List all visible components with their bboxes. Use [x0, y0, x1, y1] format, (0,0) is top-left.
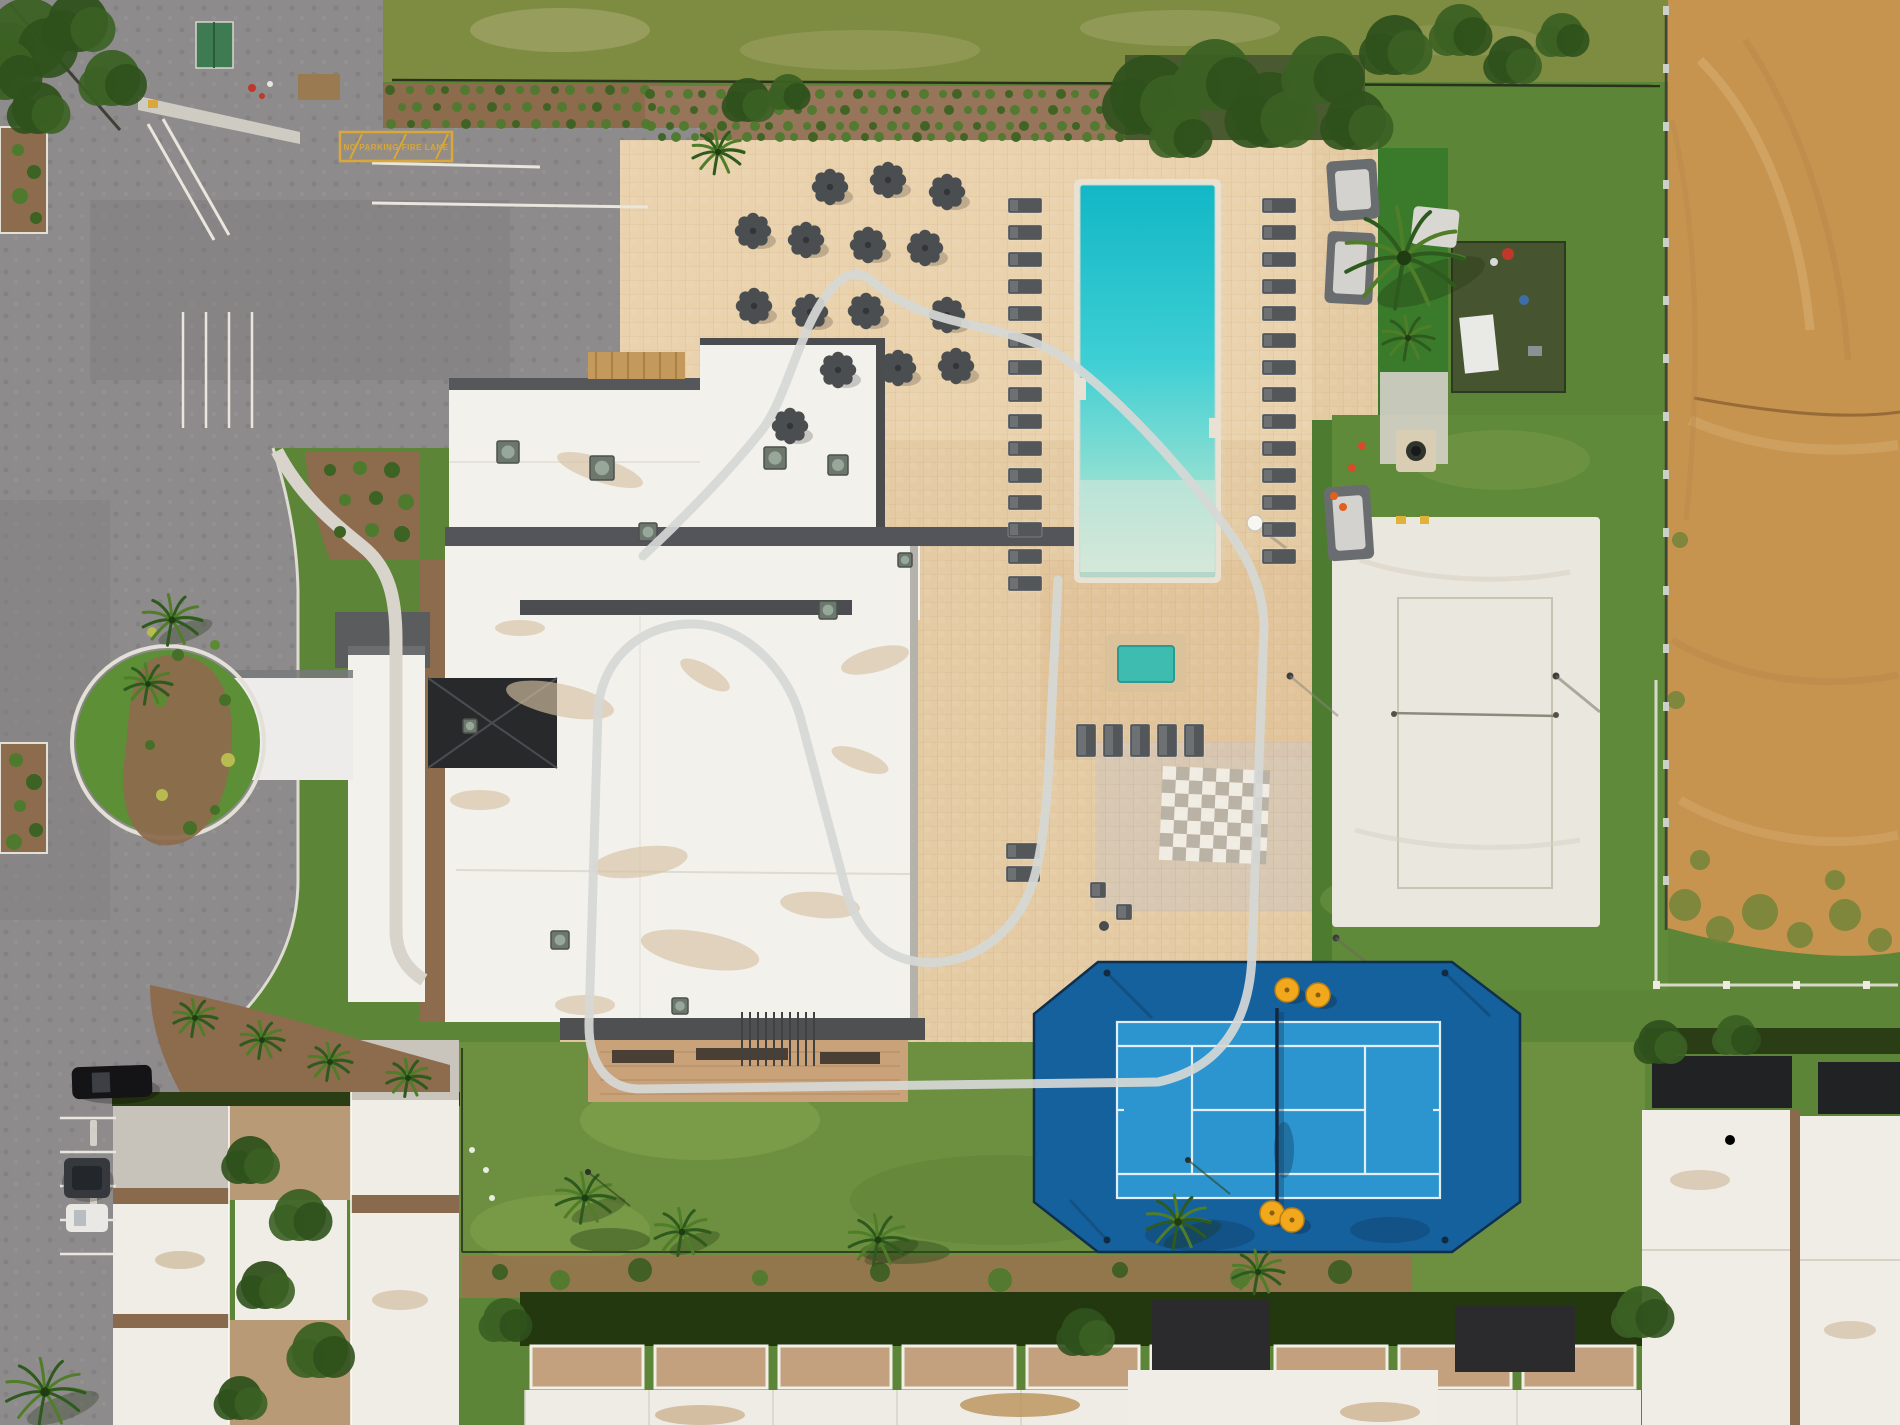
lounge-chair: [1262, 306, 1296, 321]
lounge-chair-pillow: [1159, 726, 1167, 755]
chessboard-square: [1200, 835, 1214, 849]
hedge-shrub: [433, 103, 441, 111]
umbrella-canopy-lobe: [900, 353, 912, 365]
palm-crown: [1255, 1269, 1261, 1275]
umbrella-canopy-lobe: [808, 225, 820, 237]
hedge-shrub: [442, 120, 450, 128]
palm-crown: [259, 1037, 265, 1043]
landscape-shrub: [339, 494, 351, 506]
tree-foliage: [1506, 48, 1542, 84]
hedge-shrub: [386, 119, 396, 129]
hedge-shrub: [869, 122, 877, 130]
hedge-shrub: [985, 89, 995, 99]
spa-hot-tub: [1118, 646, 1174, 682]
dry-grass-patch: [740, 30, 980, 70]
lounge-chair: [1262, 198, 1296, 213]
hedge-shrub: [1056, 89, 1066, 99]
stored-item: [1502, 248, 1514, 260]
yellow-marker: [1420, 516, 1429, 524]
party-wall: [351, 1195, 459, 1213]
hedge-shrub: [1019, 121, 1029, 131]
dirt-lot-weeds: [1829, 899, 1861, 931]
umbrella-pole-top: [751, 303, 757, 309]
lounge-chair-pillow: [1008, 868, 1016, 880]
ac-fan: [555, 935, 566, 946]
roof-parapet: [449, 378, 700, 392]
lounge-chair-pillow: [1264, 416, 1272, 427]
lounge-chair: [1262, 279, 1296, 294]
chessboard-square: [1187, 821, 1201, 835]
lounge-chair-pillow: [1264, 335, 1272, 346]
hedge-shrub: [750, 121, 760, 131]
hedge-shrub: [964, 106, 972, 114]
lounge-chair-pillow: [1264, 254, 1272, 265]
hedge-shrub: [945, 132, 955, 142]
hedge-shrub: [421, 119, 431, 129]
hedge-shrub: [849, 121, 859, 131]
chessboard-square: [1229, 769, 1243, 783]
hedge-shrub: [708, 105, 718, 115]
roof-stain: [960, 1393, 1080, 1417]
tree-foliage: [1079, 1320, 1115, 1356]
fence-post: [1663, 354, 1669, 363]
townhouse-roof: [1642, 1110, 1790, 1425]
cabana-daybed: [1326, 158, 1380, 221]
fence-post: [1793, 981, 1800, 989]
construction-marker: [259, 93, 265, 99]
hedge-shrub: [1030, 106, 1038, 114]
hedge-shrub: [717, 121, 727, 131]
lounge-chair-pillow: [1132, 726, 1140, 755]
hedge-shrub: [902, 122, 910, 130]
chessboard-square: [1161, 806, 1175, 820]
lounge-chair-pillow: [1264, 389, 1272, 400]
landscape-shrub: [369, 491, 383, 505]
landscape-shrub: [324, 464, 336, 476]
yellow-marker: [1396, 516, 1406, 524]
lounge-chair-pillow: [1010, 227, 1018, 238]
roof-stain: [155, 1251, 205, 1269]
fence-post: [1663, 412, 1669, 421]
lounge-chair-pillow: [1186, 726, 1194, 755]
island-shrub: [219, 694, 231, 706]
globe-light: [1247, 515, 1263, 531]
landscape-shrub: [9, 753, 23, 767]
hedge-shrub: [860, 106, 868, 114]
rooftop-ac-unit: [551, 931, 569, 949]
island-shrub: [183, 821, 197, 835]
lounge-chair-pillow: [1092, 884, 1100, 896]
hedge-shrub: [1057, 121, 1067, 131]
chessboard-square: [1199, 848, 1213, 862]
patio-furniture: [612, 1050, 674, 1063]
hedge-shrub: [666, 122, 674, 130]
lounge-chair-pillow: [1010, 362, 1018, 373]
chessboard-square: [1226, 836, 1240, 850]
hedge-shrub: [566, 119, 576, 129]
palm-crown: [168, 616, 175, 623]
fence-post: [1863, 981, 1870, 989]
lounge-chair-pillow: [1010, 524, 1018, 535]
hedge-shrub: [874, 132, 884, 142]
chessboard-square: [1162, 779, 1176, 793]
lounge-chair: [1008, 225, 1042, 240]
lounge-chair-pillow: [1105, 726, 1113, 755]
parked-car-white: [66, 1204, 108, 1232]
hedge-shrub: [841, 132, 851, 142]
hedge-shrub: [861, 133, 869, 141]
court-light-pole: [1442, 970, 1449, 977]
ac-fan: [901, 556, 909, 564]
hedge-row-shrub: [550, 1270, 570, 1290]
roof-stain: [1340, 1402, 1420, 1422]
hedge-shrub: [732, 122, 740, 130]
hedge-shrub: [476, 86, 484, 94]
hedge-shrub: [765, 122, 773, 130]
landscape-shrub: [12, 188, 28, 204]
chessboard-square: [1201, 795, 1215, 809]
hedge-shrub: [944, 105, 954, 115]
chessboard-square: [1189, 781, 1203, 795]
dark-flat-roof: [1152, 1300, 1270, 1370]
hedge-shrub: [665, 90, 673, 98]
car-windshield: [74, 1210, 86, 1226]
lounge-chair: [1262, 441, 1296, 456]
hedge-shrub: [935, 122, 943, 130]
parked-car-black: [71, 1065, 152, 1100]
lounge-chair-pillow: [1010, 308, 1018, 319]
landscape-shrub: [14, 800, 26, 812]
landscape-shrub: [394, 526, 410, 542]
landscape-shrub: [29, 823, 43, 837]
survey-marker: [469, 1147, 475, 1153]
pool-step-notch: [1209, 418, 1219, 438]
hedge-shrub: [997, 106, 1005, 114]
rooftop-pergola: [588, 352, 685, 379]
tree-shadow-on-court: [1350, 1217, 1430, 1243]
lounge-chair: [1008, 198, 1042, 213]
dirt-lot-weeds: [1787, 922, 1813, 948]
hedge-shrub: [972, 90, 980, 98]
umbrella-canopy-lobe: [949, 300, 961, 312]
hedge-shrub: [815, 89, 825, 99]
hedge-shrub: [671, 132, 681, 142]
palm-crown: [192, 1015, 198, 1021]
tree-foliage: [784, 83, 811, 110]
hedge-shrub: [960, 133, 968, 141]
lounge-chair-pillow: [1264, 362, 1272, 373]
lounge-chair: [1008, 549, 1042, 564]
palm-crown: [327, 1059, 333, 1065]
hedge-shrub: [835, 90, 843, 98]
umbrella-pole-top: [750, 228, 756, 234]
hedge-shrub: [911, 105, 921, 115]
cabana-cushion: [1335, 169, 1372, 211]
lounge-chair: [1008, 360, 1042, 375]
island-shrub: [210, 640, 220, 650]
aerial-photo: NO PARKING FIRE LANE: [0, 0, 1900, 1425]
townhouse-roof: [351, 1213, 459, 1425]
survey-marker: [489, 1195, 495, 1201]
dirt-lot-weeds: [1669, 889, 1701, 921]
tree-foliage: [1174, 119, 1213, 158]
hedge-shrub: [887, 121, 897, 131]
chessboard-square: [1212, 849, 1226, 863]
umbrella-pole-top: [885, 177, 891, 183]
safety-cone: [1339, 503, 1347, 511]
rooftop-ac-unit: [590, 456, 614, 480]
hedge-shrub: [716, 89, 726, 99]
umbrella-pole-top: [835, 367, 841, 373]
car-windshield: [92, 1072, 111, 1093]
chessboard-square: [1173, 834, 1187, 848]
court-light-pole: [1104, 970, 1111, 977]
hedge-shrub: [1031, 133, 1039, 141]
hedge-shrub: [441, 86, 449, 94]
palm-crown: [40, 1387, 50, 1397]
hedge-shrub: [803, 122, 811, 130]
hedge-shrub: [551, 86, 559, 94]
courtyard-patio: [531, 1346, 643, 1388]
dirt-lot-weeds: [1672, 532, 1688, 548]
party-wall: [1790, 1110, 1800, 1425]
lounge-chair: [1262, 522, 1296, 537]
party-wall: [113, 1314, 229, 1328]
hedge-row-shrub: [492, 1264, 508, 1280]
townhouse-roof: [113, 1328, 229, 1425]
fence-post: [1663, 6, 1669, 15]
umbrella-pole-top: [944, 189, 950, 195]
hedge-row-shrub: [988, 1268, 1012, 1292]
palm-crown: [715, 149, 721, 155]
dirt-lot-weeds: [1706, 916, 1734, 944]
tree-foliage: [244, 1148, 280, 1184]
lounge-chair: [1262, 360, 1296, 375]
hedge-shrub: [578, 103, 586, 111]
fire-pit-bowl: [1411, 446, 1421, 456]
palm-crown: [1397, 251, 1411, 265]
safety-cone: [1330, 492, 1338, 500]
roof-stain: [655, 1405, 745, 1425]
fence-post: [1663, 180, 1669, 189]
hedge-shrub: [886, 89, 896, 99]
survey-marker: [483, 1167, 489, 1173]
lounge-chair: [1116, 904, 1132, 920]
lounge-chair: [1157, 724, 1177, 757]
net-post: [1553, 712, 1559, 718]
courtyard-patio: [655, 1346, 767, 1388]
hedge-shrub: [1072, 122, 1080, 130]
hedge-shrub: [808, 132, 818, 142]
hedge-shrub: [953, 121, 963, 131]
dirt-lot-weeds: [1868, 928, 1892, 952]
volleyball-court: [1332, 516, 1600, 972]
rooftop-ac-unit: [764, 447, 786, 469]
palm-crown: [1405, 335, 1411, 341]
hedge-shrub: [828, 133, 836, 141]
umbrella-pole-top: [863, 308, 869, 314]
landscape-shrub: [353, 461, 367, 475]
palm-crown: [679, 1229, 686, 1236]
hedge-shrub: [407, 120, 415, 128]
suv-roof: [72, 1166, 102, 1190]
townhouse-unit: [773, 1346, 897, 1425]
hedge-shrub: [425, 85, 435, 95]
fence-post: [1663, 296, 1669, 305]
hedge-shrub: [543, 103, 551, 111]
roof-stain: [495, 620, 545, 636]
hedge-shrub: [690, 106, 698, 114]
lounge-chair-pillow: [1010, 281, 1018, 292]
hedge-shrub: [1005, 90, 1013, 98]
rooftop-ac-unit: [497, 441, 519, 463]
lounge-chair: [1262, 495, 1296, 510]
tree-foliage: [105, 64, 147, 106]
ac-fan: [832, 459, 844, 471]
fence-post: [1663, 644, 1669, 653]
hedge-shrub: [816, 121, 826, 131]
hedge-shrub: [1023, 89, 1033, 99]
pool-step-notch: [1076, 378, 1086, 400]
palm-crown: [874, 1236, 881, 1243]
lounge-chair: [1008, 441, 1042, 456]
construction-marker: [248, 84, 256, 92]
roof-stain: [450, 790, 510, 810]
ac-fan: [643, 527, 654, 538]
hedge-shrub: [1081, 105, 1091, 115]
hedge-shrub: [495, 85, 505, 95]
chessboard-square: [1186, 847, 1200, 861]
hedge-shrub: [412, 102, 422, 112]
hedge-shrub: [530, 85, 540, 95]
construction-marker: [267, 81, 273, 87]
hedge-shrub: [487, 102, 497, 112]
chessboard-square: [1186, 834, 1200, 848]
hedge-shrub: [901, 90, 909, 98]
tree-foliage: [1454, 17, 1493, 56]
aerial-photo-canvas: NO PARKING FIRE LANE: [0, 0, 1900, 1425]
umbrella-canopy-lobe: [890, 165, 902, 177]
courtyard-patio: [779, 1346, 891, 1388]
hedge-shrub: [646, 121, 656, 131]
landscape-shrub: [30, 212, 42, 224]
dirt-lot-weeds: [1667, 691, 1685, 709]
hedge-shrub: [516, 86, 524, 94]
landscape-shrub: [27, 165, 41, 179]
lounge-chair: [1008, 522, 1042, 537]
hedge-shrub: [632, 102, 642, 112]
hedge-shrub: [683, 89, 693, 99]
hedge-shrub: [658, 133, 666, 141]
hedge-shrub: [691, 133, 699, 141]
lounge-chair-pillow: [1010, 443, 1018, 454]
hedge-shrub: [926, 106, 934, 114]
hedge-shrub: [657, 106, 665, 114]
umbrella-pole-top: [895, 365, 901, 371]
umbrella-canopy-lobe: [868, 296, 880, 308]
tree-foliage: [500, 1309, 533, 1342]
parking-island: [0, 743, 47, 853]
umbrella-pole-top: [865, 242, 871, 248]
hedge-shrub: [586, 86, 594, 94]
tree-foliage: [313, 1336, 355, 1378]
dirt-lot-weeds: [1690, 850, 1710, 870]
chessboard-square: [1216, 768, 1230, 782]
hedge-shrub: [557, 102, 567, 112]
lounge-chair: [1076, 724, 1096, 757]
lounge-chair: [1103, 724, 1123, 757]
umbrella-canopy-lobe: [792, 411, 804, 423]
hedge-shrub: [790, 133, 798, 141]
umbrella-pole-top: [922, 245, 928, 251]
umbrella-canopy-lobe: [949, 177, 961, 189]
hedge-shrub: [622, 120, 630, 128]
lounge-chair-pillow: [1118, 906, 1126, 918]
rooftop-ac-unit: [828, 455, 848, 475]
stored-item: [1519, 295, 1529, 305]
lounge-chair: [1262, 387, 1296, 402]
lounge-chair-pillow: [1010, 578, 1018, 589]
townhouse-roof: [773, 1390, 897, 1425]
hedge-shrub: [998, 133, 1006, 141]
tree-foliage: [32, 95, 71, 134]
lounge-chair-pillow: [1008, 845, 1016, 857]
hedge-shrub: [1010, 105, 1020, 115]
ac-fan: [595, 461, 609, 475]
chessboard-square: [1203, 768, 1217, 782]
lounge-chair: [1262, 252, 1296, 267]
dark-flat-roof: [1455, 1306, 1575, 1372]
hedge-shrub: [742, 132, 752, 142]
tree-foliage: [1655, 1031, 1688, 1064]
hedge-shrub: [973, 122, 981, 130]
chessboard-square: [1228, 809, 1242, 823]
hedge-shrub: [1044, 132, 1054, 142]
umbrella-canopy-lobe: [756, 291, 768, 303]
chessboard-square: [1188, 794, 1202, 808]
landscape-shrub: [384, 462, 400, 478]
lounge-chair-pillow: [1264, 200, 1272, 211]
chessboard-square: [1176, 767, 1190, 781]
umbrella-canopy-lobe: [958, 351, 970, 363]
chessboard-square: [1174, 807, 1188, 821]
chessboard-square: [1159, 833, 1173, 847]
courtyard-patio: [903, 1346, 1015, 1388]
townhouse-roof: [1517, 1390, 1641, 1425]
yellow-umbrella-pole: [1316, 993, 1321, 998]
rooftop-ac-unit: [463, 719, 477, 733]
hedge-shrub: [919, 89, 929, 99]
tree-foliage: [71, 7, 116, 52]
ac-fan: [466, 722, 474, 730]
roof-stain: [1670, 1170, 1730, 1190]
tree-foliage: [1388, 30, 1433, 75]
hedge-shrub: [836, 122, 844, 130]
umbrella-canopy-lobe: [832, 172, 844, 184]
hedge-shrub: [552, 120, 560, 128]
ac-fan: [768, 451, 781, 464]
hedge-shrub: [827, 106, 835, 114]
hedge-shrub: [601, 119, 611, 129]
fence-post: [1723, 981, 1730, 989]
yellow-umbrella-pole: [1270, 1211, 1275, 1216]
hedge-shrub: [978, 132, 988, 142]
net-post: [1391, 711, 1397, 717]
lounge-chair: [1262, 414, 1296, 429]
hedge-shrub: [670, 105, 680, 115]
chessboard-square: [1173, 820, 1187, 834]
reserved-stall-marking: [90, 1120, 97, 1146]
